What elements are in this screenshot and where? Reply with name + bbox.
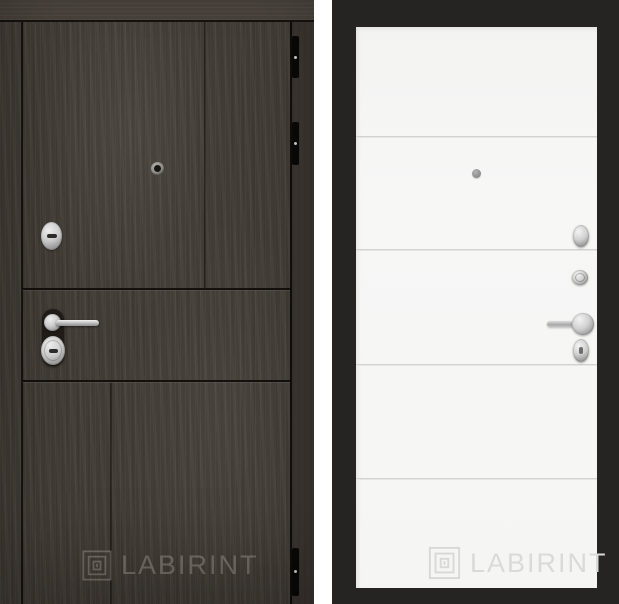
product-collage: LABIRINT xyxy=(0,0,619,604)
wood-grain-texture xyxy=(0,0,314,604)
brand-watermark: LABIRINT xyxy=(82,549,259,582)
peephole-icon xyxy=(472,169,481,178)
peephole-lens xyxy=(154,165,161,172)
hinge xyxy=(292,36,299,78)
brand-name: LABIRINT xyxy=(121,552,259,579)
lock-escutcheon xyxy=(41,222,62,250)
horizontal-groove xyxy=(22,380,290,383)
lock-escutcheon xyxy=(573,339,589,362)
keyhole-slot xyxy=(579,347,583,354)
lock-cylinder xyxy=(572,270,588,285)
keyhole-slot xyxy=(49,349,58,353)
keyhole-slot xyxy=(47,234,57,238)
horizontal-groove xyxy=(22,288,290,291)
hinge xyxy=(292,122,299,165)
horizontal-molding-line xyxy=(356,249,597,251)
white-door-panel: LABIRINT xyxy=(356,27,597,588)
door-interior-side-photo: LABIRINT xyxy=(332,0,619,604)
door-side-edge xyxy=(292,22,314,604)
hinge-pin xyxy=(294,570,297,573)
hinge-pin xyxy=(294,142,297,145)
hinge-pin xyxy=(294,56,297,59)
thumb-turn-knob xyxy=(573,225,589,247)
photo-vignette xyxy=(0,0,314,604)
labirint-maze-icon xyxy=(428,546,461,580)
cylinder-ring xyxy=(575,273,585,282)
lock-cylinder xyxy=(41,336,65,365)
upper-panel-seam xyxy=(204,22,206,288)
left-stile-seam xyxy=(21,22,23,604)
door-handle-lever xyxy=(56,320,99,326)
labirint-maze-icon xyxy=(82,549,112,582)
brand-watermark: LABIRINT xyxy=(428,546,608,580)
brand-name: LABIRINT xyxy=(470,550,608,577)
peephole-icon xyxy=(151,162,164,175)
horizontal-molding-line xyxy=(356,136,597,138)
hinge xyxy=(292,548,299,596)
handle-rosette xyxy=(572,313,594,335)
door-top-rail xyxy=(0,0,314,22)
horizontal-molding-line xyxy=(356,364,597,366)
horizontal-molding-line xyxy=(356,478,597,480)
door-exterior-side-photo: LABIRINT xyxy=(0,0,314,604)
